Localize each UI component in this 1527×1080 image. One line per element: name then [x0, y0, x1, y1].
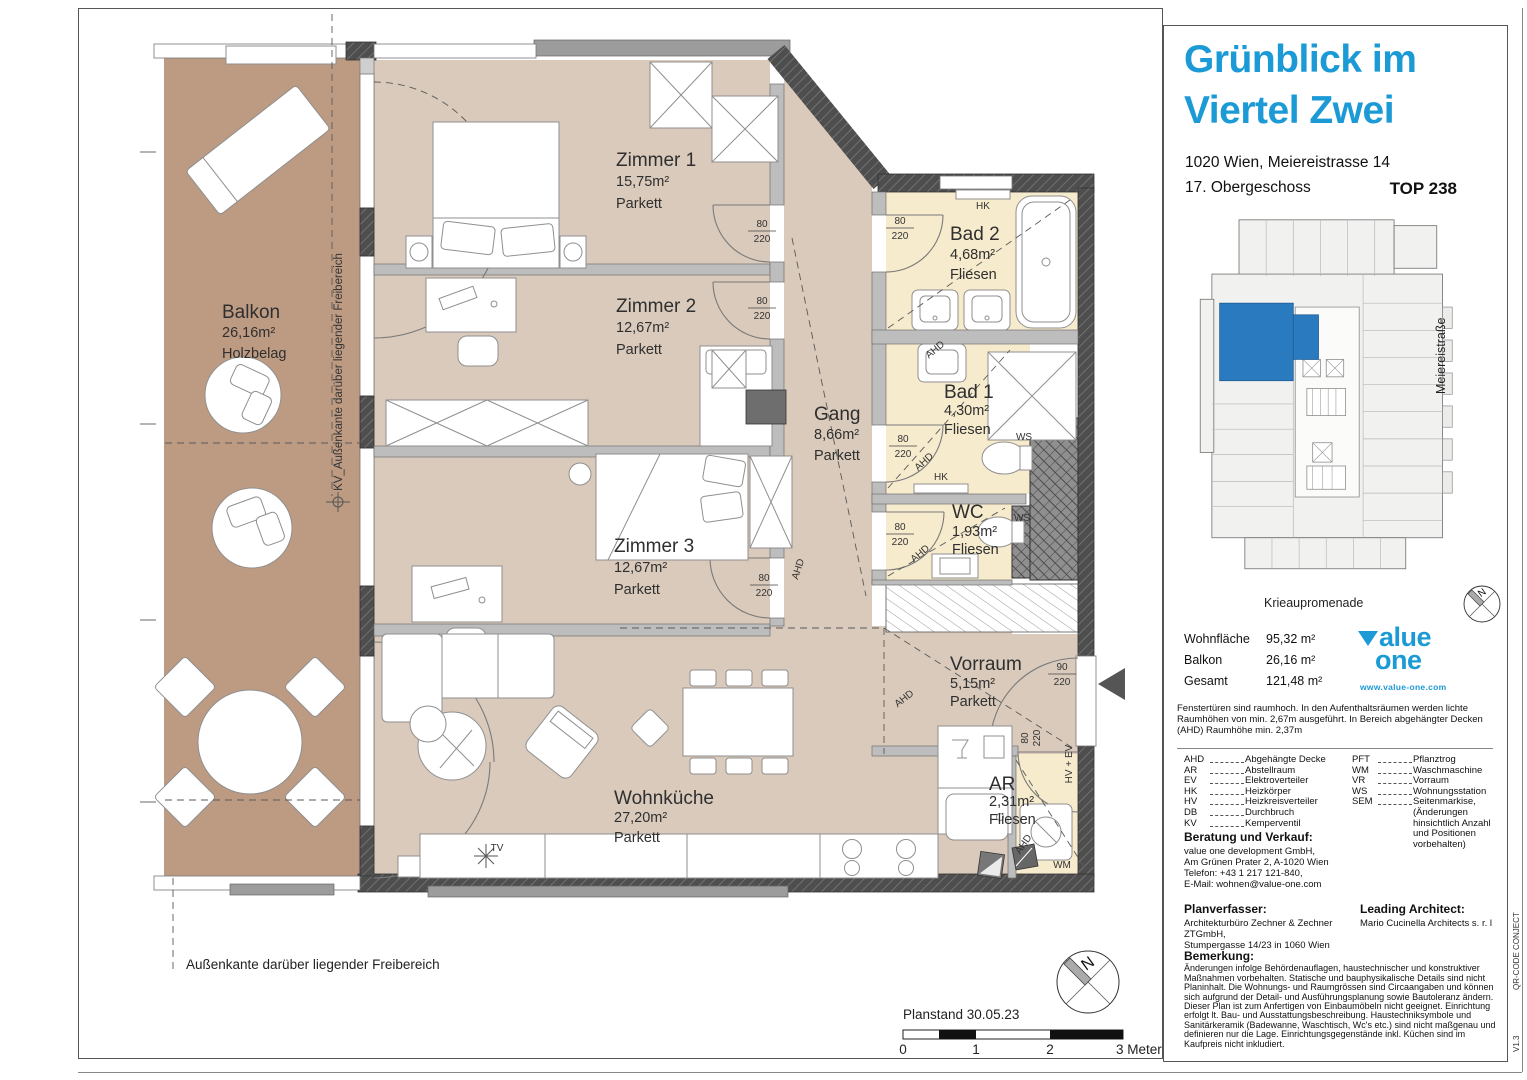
svg-text:220: 220 [892, 537, 909, 548]
remark-block: Bemerkung: Änderungen infolge Behördenau… [1184, 952, 1498, 1049]
architect-block: Leading Architect: Mario Cucinella Archi… [1360, 904, 1500, 929]
svg-text:90: 90 [1056, 662, 1068, 673]
plan-date: Planstand 30.05.23 [903, 1007, 1019, 1022]
svg-text:2,31m²: 2,31m² [989, 794, 1034, 810]
svg-text:5,15m²: 5,15m² [950, 676, 995, 692]
svg-text:8,66m²: 8,66m² [814, 427, 859, 443]
floorplan-sheet: { "panel": { "title_line1": "Grünblick i… [0, 0, 1527, 1080]
side-note-version: V1.3 [1512, 1036, 1521, 1052]
svg-text:Parkett: Parkett [614, 582, 660, 598]
svg-text:26,16m²: 26,16m² [222, 325, 275, 341]
svg-text:80: 80 [1020, 732, 1031, 744]
svg-text:4,30m²: 4,30m² [944, 403, 989, 419]
ceiling-height-note: Fenstertüren sind raumhoch. In den Aufen… [1177, 704, 1493, 736]
ws-label-bad1: WS [1016, 432, 1032, 443]
hk-label-bad1: HK [934, 472, 948, 483]
unit-number: TOP 238 [1390, 179, 1457, 199]
area-label: Wohnfläche [1184, 632, 1266, 646]
svg-text:2: 2 [1046, 1042, 1054, 1057]
svg-text:12,67m²: 12,67m² [616, 320, 669, 336]
svg-text:Fliesen: Fliesen [952, 542, 999, 558]
area-value: 95,32 m² [1266, 632, 1315, 646]
svg-text:Fliesen: Fliesen [989, 812, 1036, 828]
svg-text:Parkett: Parkett [814, 448, 860, 464]
ws-label-wc: WS [1014, 513, 1030, 524]
hv-ev-label: HV + EV [1064, 744, 1075, 783]
contact-email: E-Mail: wohnen@value-one.com [1184, 879, 1329, 890]
svg-text:4,68m²: 4,68m² [950, 247, 995, 263]
side-note-qr: QR-CODE CONJECT [1512, 912, 1521, 990]
room-label-zimmer3: Zimmer 3 [614, 536, 694, 557]
svg-text:1: 1 [972, 1042, 980, 1057]
room-label-bad1: Bad 1 [944, 382, 994, 403]
compass: N [1057, 951, 1119, 1013]
room-label-zimmer2: Zimmer 2 [616, 296, 696, 317]
balcony-edge-note-vertical: KV_Außenkante darüber liegender Freibere… [333, 253, 345, 491]
svg-text:Fliesen: Fliesen [944, 422, 991, 438]
svg-text:220: 220 [895, 449, 912, 460]
street-label-bottom: Krieaupromenade [1264, 596, 1363, 610]
room-label-bad2: Bad 2 [950, 224, 1000, 245]
info-panel: Grünblick im Viertel Zwei 1020 Wien, Mei… [1163, 25, 1508, 1062]
svg-text:3 Meter: 3 Meter [1116, 1042, 1162, 1057]
minimap-compass: N [1460, 582, 1504, 631]
area-label: Balkon [1184, 653, 1266, 667]
svg-text:80: 80 [897, 434, 909, 445]
svg-text:1,93m²: 1,93m² [952, 524, 997, 540]
logo-triangle-icon [1358, 631, 1378, 646]
tv-label: TV [491, 843, 504, 854]
planner-block: Planverfasser: Architekturbüro Zechner &… [1184, 904, 1352, 951]
svg-text:80: 80 [756, 219, 768, 230]
area-value: 26,16 m² [1266, 653, 1315, 667]
scale-bar: 0 1 2 3 Meter [899, 1030, 1162, 1057]
svg-text:220: 220 [754, 311, 771, 322]
area-summary: Wohnfläche95,32 m² Balkon26,16 m² Gesamt… [1184, 628, 1322, 691]
hk-label-bad2: HK [976, 201, 990, 212]
svg-text:Parkett: Parkett [616, 342, 662, 358]
svg-text:0: 0 [899, 1042, 907, 1057]
divider [1177, 748, 1493, 749]
room-label-zimmer1: Zimmer 1 [616, 150, 696, 171]
floor-label: 17. Obergeschoss [1185, 179, 1311, 199]
logo-url: www.value-one.com [1360, 676, 1447, 699]
svg-text:80: 80 [894, 522, 906, 533]
room-label-wohnkueche: Wohnküche [614, 788, 714, 809]
svg-text:80: 80 [758, 573, 770, 584]
room-label-gang: Gang [814, 404, 860, 425]
svg-text:220: 220 [754, 234, 771, 245]
value-one-logo: alue one www.value-one.com [1358, 626, 1447, 699]
address: 1020 Wien, Meiereistrasse 14 [1185, 154, 1390, 172]
svg-text:220: 220 [756, 588, 773, 599]
room-label-balkon: Balkon [222, 302, 280, 323]
sales-contact: Beratung und Verkauf: value one developm… [1184, 832, 1329, 890]
svg-text:220: 220 [1032, 729, 1043, 746]
room-label-vorraum: Vorraum [950, 654, 1022, 675]
entrance-arrow [1098, 668, 1125, 700]
svg-text:Parkett: Parkett [950, 694, 996, 710]
svg-text:15,75m²: 15,75m² [616, 174, 669, 190]
svg-text:Parkett: Parkett [614, 830, 660, 846]
svg-text:Fliesen: Fliesen [950, 267, 997, 283]
room-label-wc: WC [952, 502, 984, 523]
balcony-edge-note-bottom: Außenkante darüber liegender Freibereich [186, 957, 440, 972]
svg-text:220: 220 [892, 231, 909, 242]
area-label: Gesamt [1184, 674, 1266, 688]
svg-text:220: 220 [1054, 677, 1071, 688]
svg-text:27,20m²: 27,20m² [614, 810, 667, 826]
street-label-right: Meiereistraße [1434, 274, 1448, 394]
svg-text:80: 80 [894, 216, 906, 227]
svg-text:80: 80 [756, 296, 768, 307]
wm-label: WM [1053, 860, 1071, 871]
svg-text:12,67m²: 12,67m² [614, 560, 667, 576]
room-label-ar: AR [989, 774, 1015, 795]
project-title: Grünblick im Viertel Zwei [1184, 34, 1416, 136]
svg-text:Parkett: Parkett [616, 196, 662, 212]
balcony-window-wall [360, 58, 374, 876]
building-overview-map [1194, 214, 1474, 597]
svg-text:Holzbelag: Holzbelag [222, 346, 287, 362]
area-value: 121,48 m² [1266, 674, 1322, 688]
